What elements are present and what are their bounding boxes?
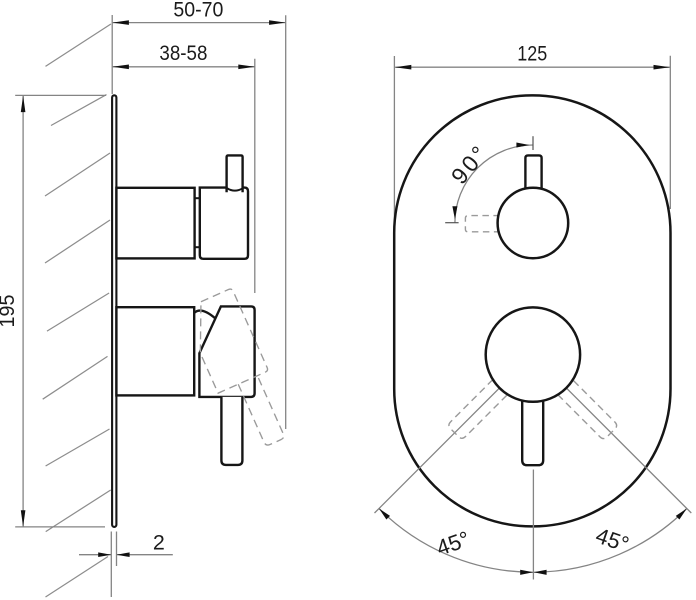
- svg-text:195: 195: [0, 294, 19, 327]
- svg-text:50-70: 50-70: [173, 0, 223, 22]
- svg-text:2: 2: [153, 530, 165, 554]
- svg-text:125: 125: [517, 42, 547, 66]
- svg-text:38-58: 38-58: [159, 41, 207, 65]
